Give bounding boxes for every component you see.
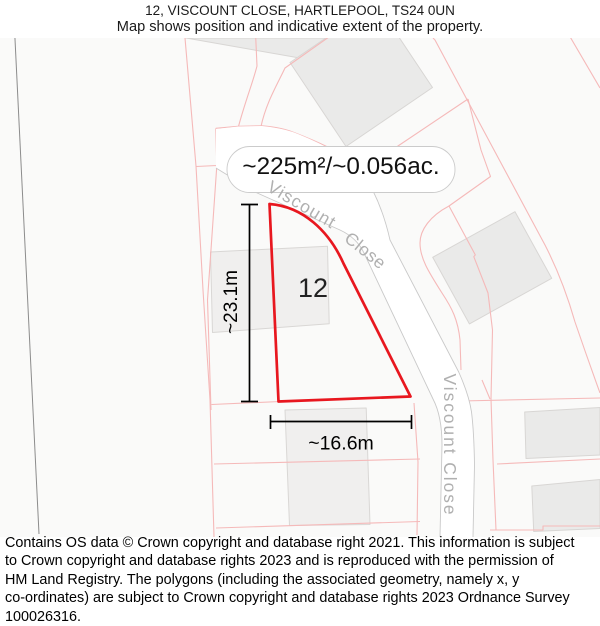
svg-text:12: 12 — [298, 273, 328, 303]
svg-text:~225m²/~0.056ac.: ~225m²/~0.056ac. — [242, 153, 439, 180]
svg-text:Viscount Close: Viscount Close — [440, 374, 460, 517]
svg-text:~16.6m: ~16.6m — [308, 433, 374, 455]
svg-text:~23.1m: ~23.1m — [221, 270, 242, 334]
